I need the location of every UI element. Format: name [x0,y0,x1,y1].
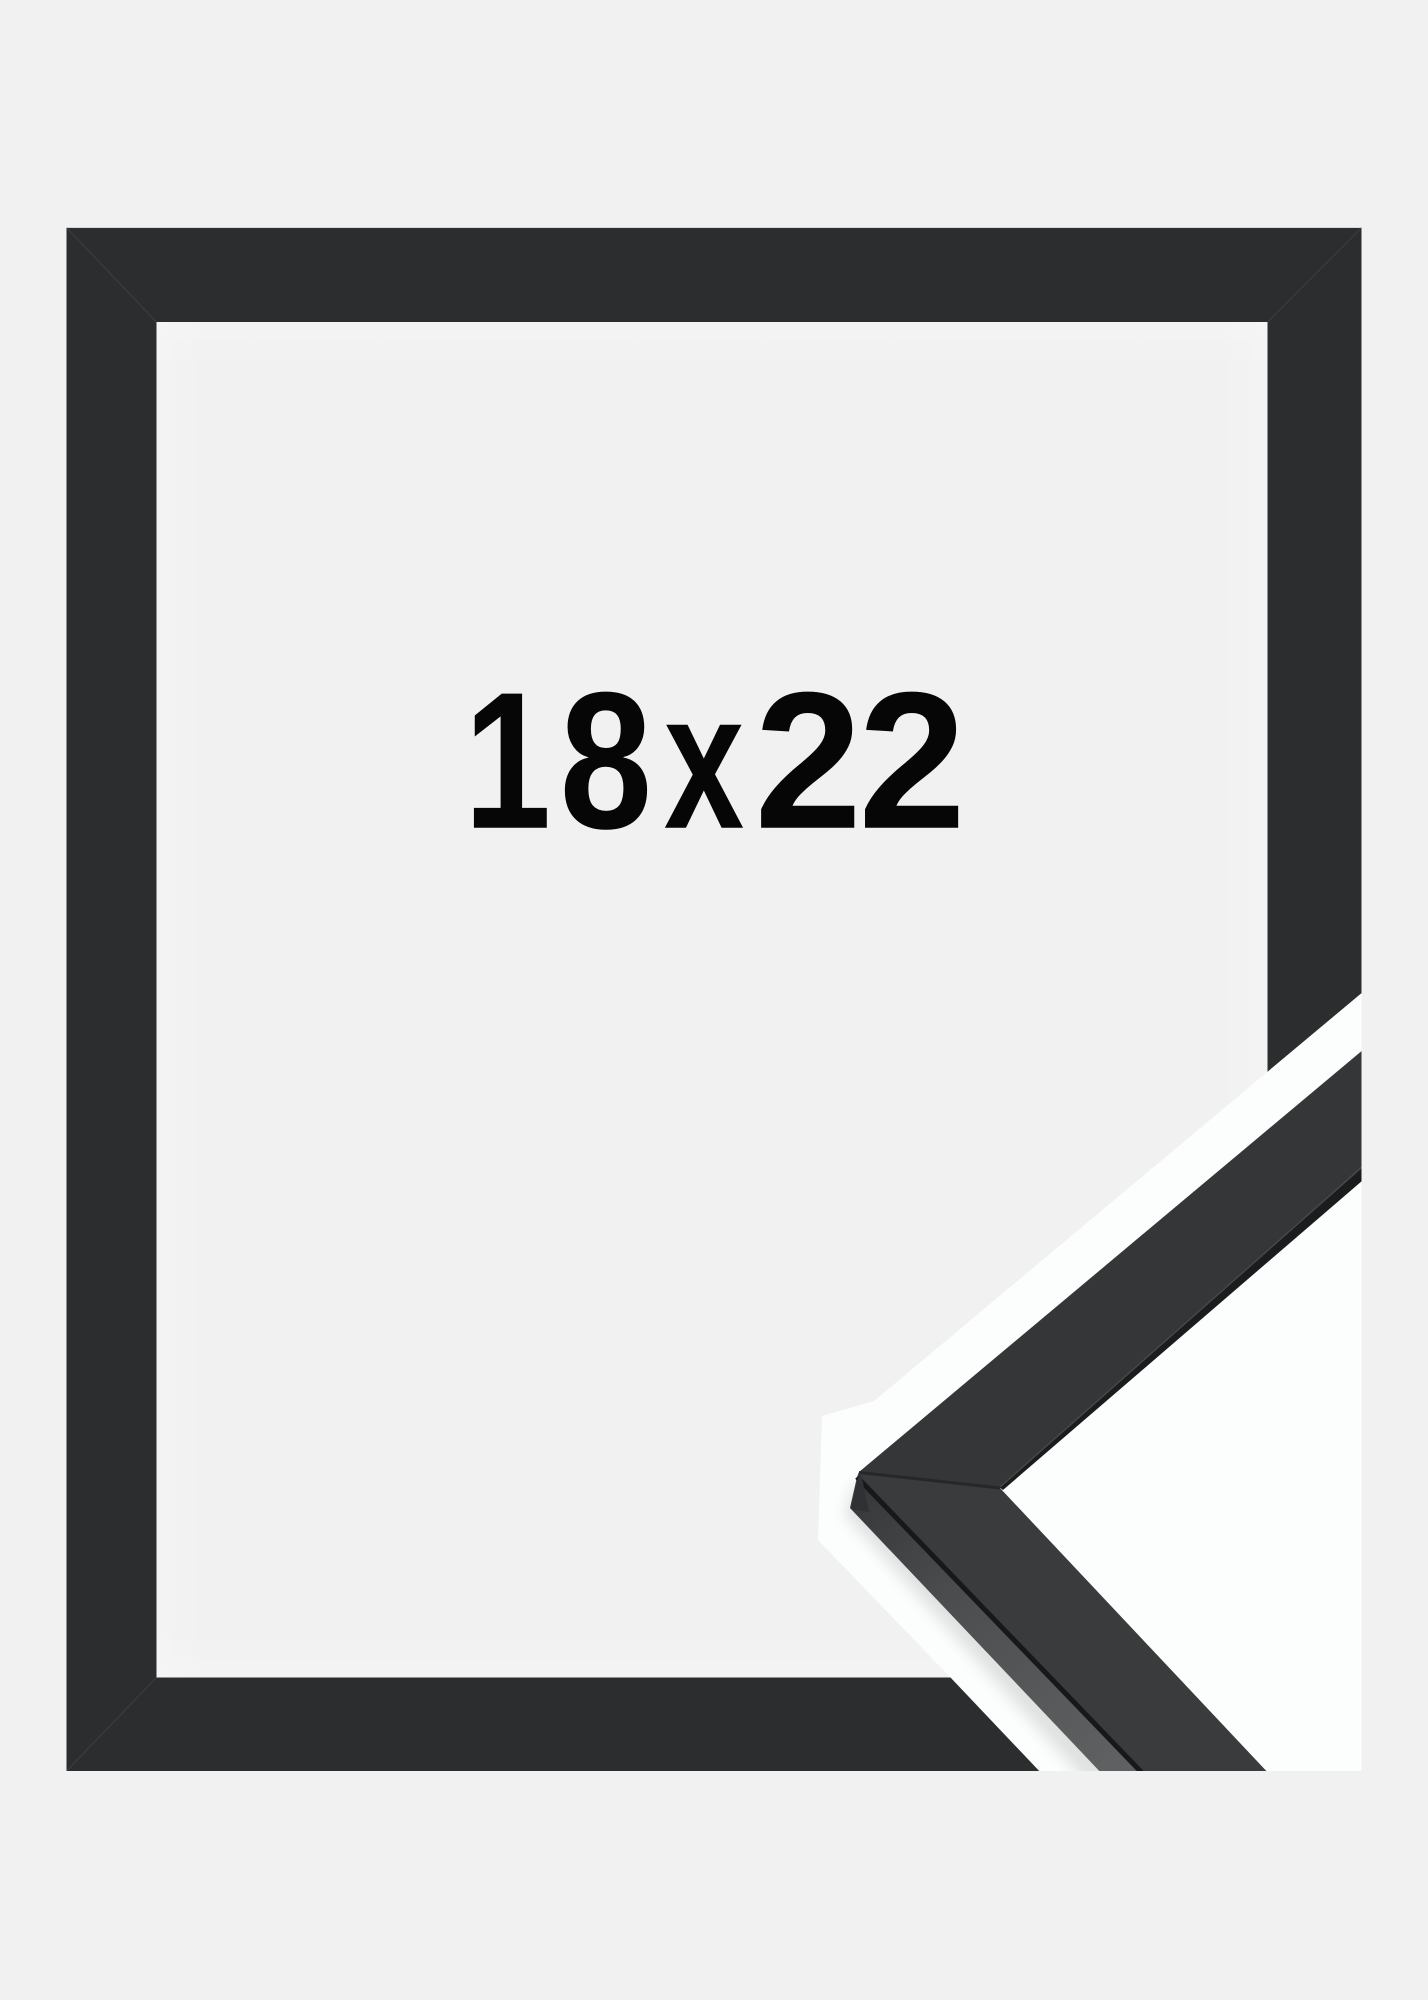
svg-text:x: x [664,653,744,870]
svg-text:8: 8 [560,653,653,870]
svg-text:1: 1 [464,652,551,869]
svg-text:2: 2 [754,652,862,870]
svg-text:2: 2 [858,652,966,870]
